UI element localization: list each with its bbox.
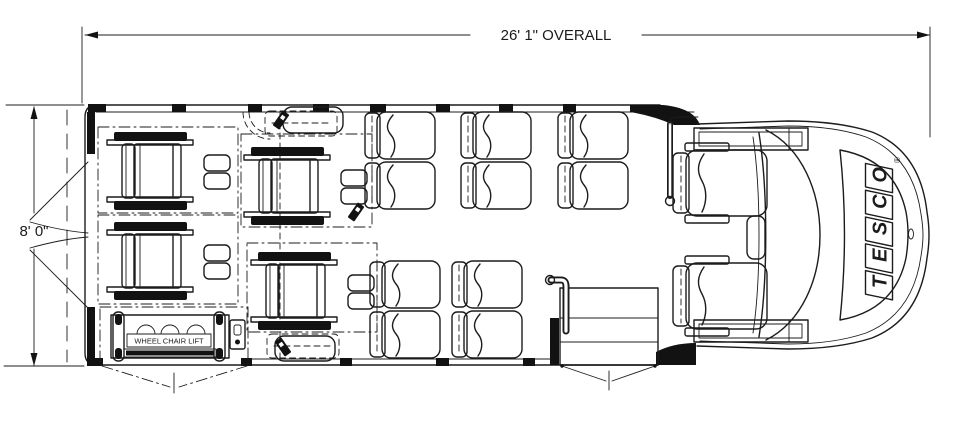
entry-door bbox=[546, 276, 659, 391]
foldaway-seat-rear bbox=[267, 334, 339, 361]
seatbelt-buckle-icon bbox=[348, 202, 365, 221]
logo-letter: C bbox=[870, 194, 892, 209]
engine-console bbox=[747, 216, 765, 259]
seat-pair-4 bbox=[370, 261, 440, 358]
stanchion-pole bbox=[666, 117, 699, 206]
wheelchair-position-4 bbox=[247, 243, 377, 332]
cab-door-bottom bbox=[694, 320, 808, 342]
seatbelt-buckle-icon bbox=[273, 110, 290, 129]
stepwell bbox=[560, 288, 658, 365]
seat-pair-3 bbox=[558, 112, 628, 209]
overall-length-label: 26' 1" OVERALL bbox=[501, 27, 612, 44]
logo-letter: E bbox=[870, 248, 892, 262]
dim-arrow-bottom bbox=[31, 353, 38, 366]
logo-letter: T bbox=[870, 274, 892, 288]
entry-door-post bbox=[550, 318, 559, 365]
cab-door-top bbox=[694, 128, 808, 150]
dimension-width: 8' 0" bbox=[4, 105, 84, 366]
logo-letter: S bbox=[870, 221, 892, 235]
tesco-logo: T E S C O ® bbox=[866, 157, 903, 300]
entry-door-swing bbox=[560, 364, 656, 390]
bus-floorplan-diagram: 26' 1" OVERALL 8' 0" bbox=[0, 0, 964, 425]
wheelchair-position-3 bbox=[241, 134, 372, 227]
lift-control-box bbox=[230, 320, 245, 349]
windshield bbox=[753, 130, 820, 340]
seat-pair-2 bbox=[461, 112, 531, 209]
wheelchair-position-1 bbox=[98, 127, 238, 213]
dim-arrow-left bbox=[85, 32, 98, 39]
registered-mark: ® bbox=[893, 157, 902, 163]
hood-ornament bbox=[909, 229, 914, 239]
seat-pair-1 bbox=[365, 112, 435, 209]
bus-floorplan-page: 26' 1" OVERALL 8' 0" bbox=[0, 0, 964, 425]
dimension-overall: 26' 1" OVERALL bbox=[82, 27, 930, 137]
driver-seat bbox=[673, 143, 767, 223]
seat-pair-5 bbox=[452, 261, 522, 358]
wheelchair-position-2 bbox=[98, 215, 238, 304]
logo-letter: O bbox=[870, 167, 892, 183]
rear-door-post-top bbox=[87, 112, 95, 154]
seatbelt-buckle-icon bbox=[275, 337, 292, 356]
rear-door-post-bottom bbox=[87, 307, 95, 359]
dim-arrow-top bbox=[31, 106, 38, 119]
cab-fairing-bottom bbox=[656, 343, 696, 365]
lift-label: WHEEL CHAIR LIFT bbox=[134, 337, 204, 346]
lift-door-swing bbox=[102, 366, 247, 393]
wheelchair-lift: WHEEL CHAIR LIFT bbox=[100, 307, 248, 393]
cab-fairing-top bbox=[630, 105, 700, 125]
dim-arrow-right bbox=[917, 32, 930, 39]
front-cab: T E S C O ® bbox=[694, 121, 929, 349]
